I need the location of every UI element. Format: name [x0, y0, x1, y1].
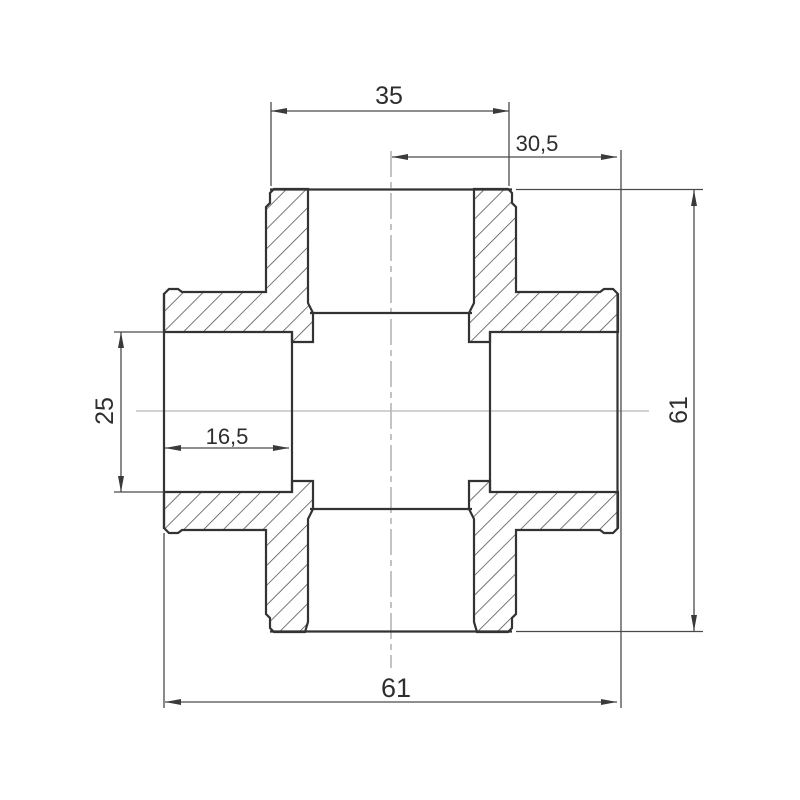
dimension-label-16-5: 16,5 — [206, 424, 249, 449]
dimension-label-30-5: 30,5 — [516, 131, 559, 156]
technical-drawing-canvas: 35 30,5 25 16,5 61 61 — [0, 0, 800, 800]
dimension-label-35: 35 — [375, 82, 403, 110]
dimension-label-61-right: 61 — [665, 396, 693, 424]
dimension-label-61-bottom: 61 — [381, 673, 411, 703]
cross-fitting-section-drawing: 35 30,5 25 16,5 61 61 — [0, 0, 800, 800]
dimension-label-25: 25 — [91, 397, 119, 425]
